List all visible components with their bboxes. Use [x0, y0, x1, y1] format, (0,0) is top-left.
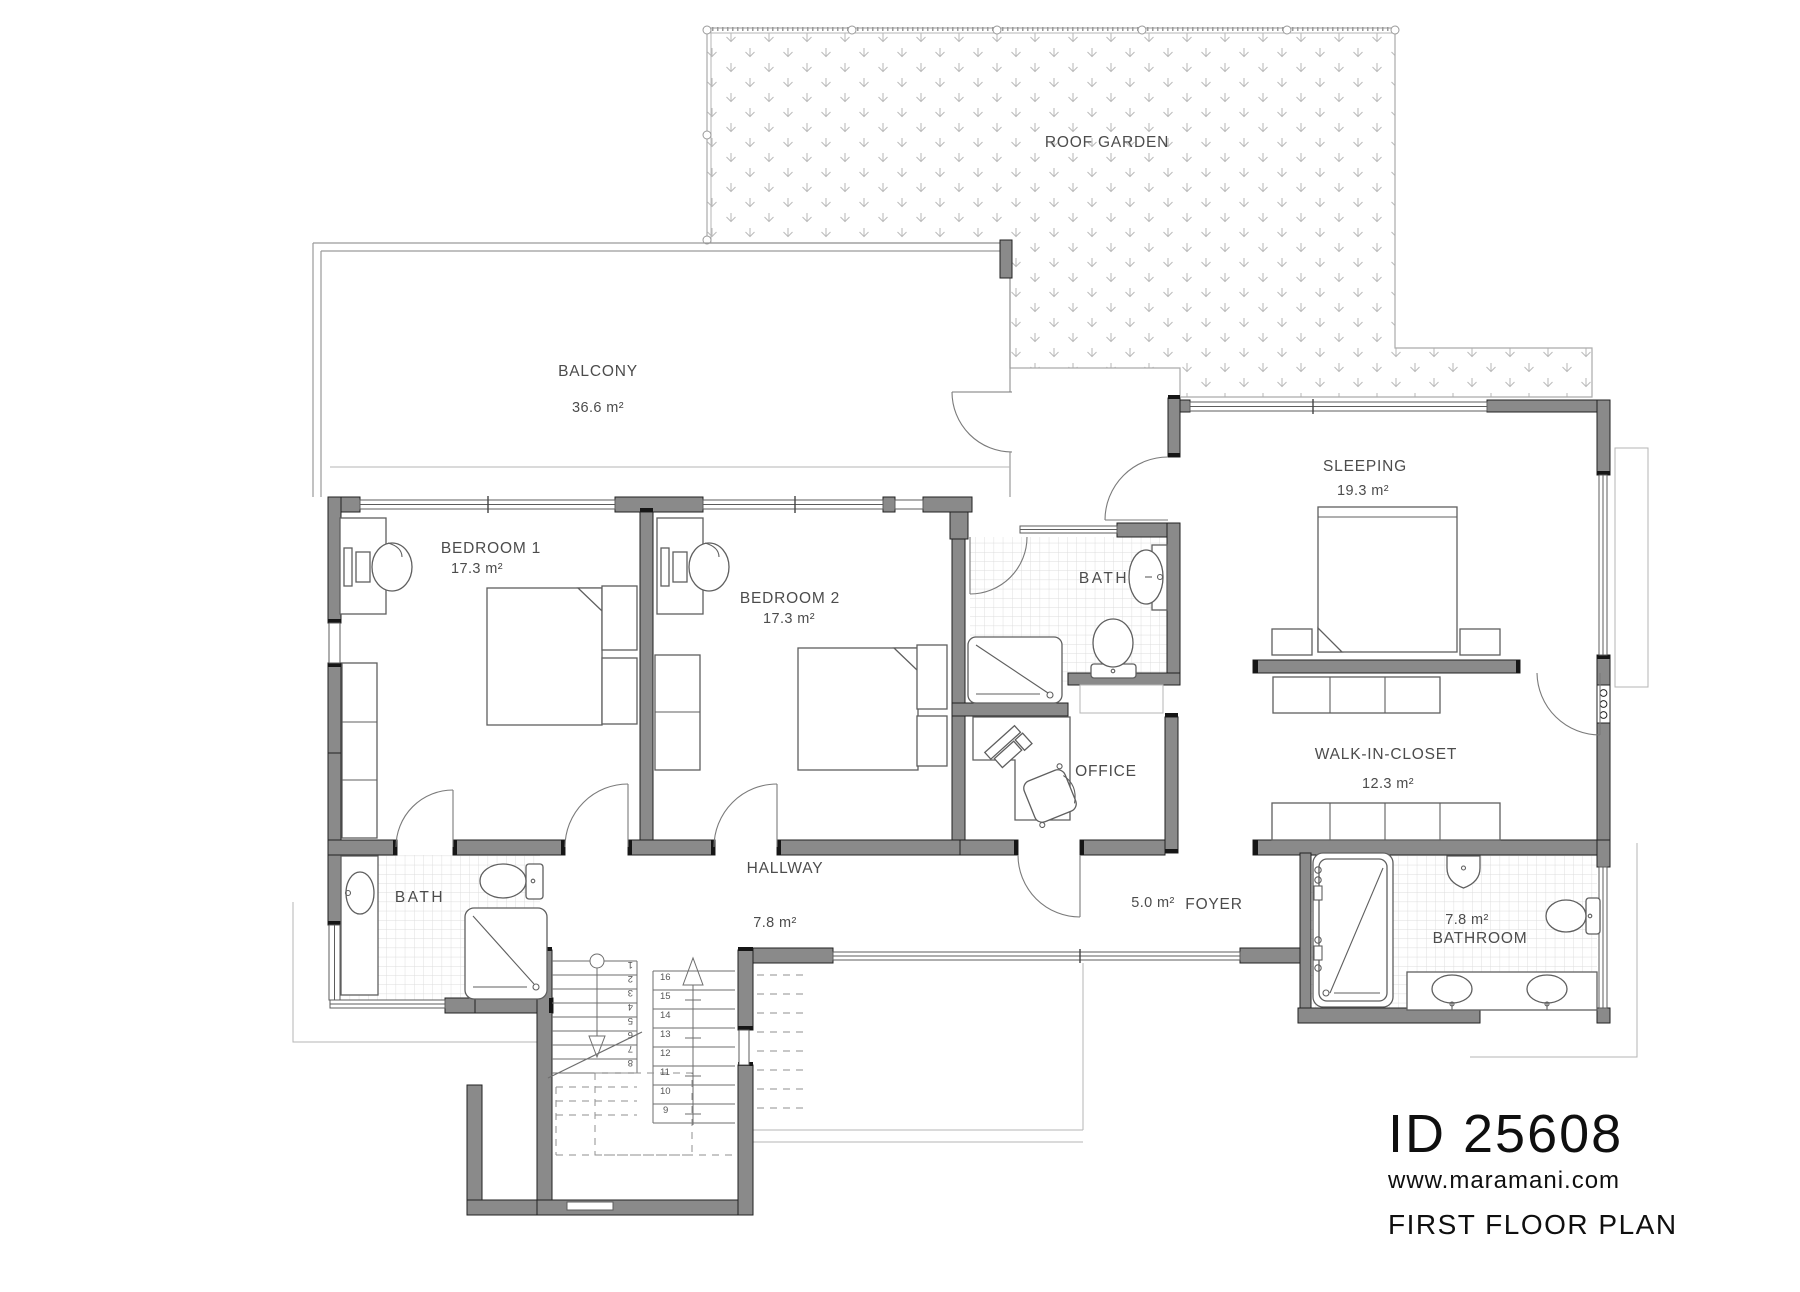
stair-numbers-down: 1 2 3 4 5 6 7 8 [628, 959, 633, 1068]
toilet [480, 864, 543, 899]
vanity-sink [341, 856, 378, 995]
door-sleeping [1105, 457, 1168, 520]
step-number: 16 [660, 972, 671, 983]
sleeping-label: SLEEPING [1323, 458, 1407, 475]
bathroom-area: 7.8 m² [1445, 912, 1489, 928]
step-number: 3 [628, 987, 633, 998]
shower [465, 908, 547, 999]
step-number: 1 [628, 959, 633, 970]
sleeping-area: 19.3 m² [1337, 483, 1389, 499]
roof-garden: ROOF GARDEN [703, 26, 1592, 397]
step-number: 13 [660, 1029, 671, 1040]
balcony: BALCONY 36.6 m² [313, 243, 1010, 497]
bathroom-label: BATHROOM [1433, 930, 1528, 947]
step-number: 2 [628, 973, 633, 984]
door-foyer [1018, 855, 1080, 917]
closet-area: 12.3 m² [1362, 776, 1414, 792]
step-number: 8 [628, 1057, 633, 1068]
closet-label: WALK-IN-CLOSET [1315, 746, 1457, 763]
balcony-area: 36.6 m² [572, 400, 624, 416]
plan-name: FIRST FLOOR PLAN [1388, 1209, 1678, 1240]
room-walk-in-closet: WALK-IN-CLOSET 12.3 m² [1272, 677, 1500, 840]
bathtub [1313, 853, 1393, 1007]
desk-bedroom2 [657, 518, 729, 614]
step-number: 10 [660, 1086, 671, 1097]
bedroom1-area: 17.3 m² [451, 561, 503, 577]
toilet [1546, 898, 1600, 934]
shower [968, 637, 1062, 703]
roof-garden-label: ROOF GARDEN [1045, 134, 1169, 151]
step-number: 6 [628, 1029, 633, 1040]
room-bedroom1: BEDROOM 1 17.3 m² [340, 518, 637, 838]
stairs: 1 2 3 4 5 6 7 8 16 15 14 13 12 11 10 9 [548, 954, 806, 1155]
stair-numbers-up: 16 15 14 13 12 11 10 9 [660, 972, 671, 1116]
hallway-area: 7.8 m² [753, 915, 797, 931]
bedroom2-area: 17.3 m² [763, 611, 815, 627]
desk-bedroom1 [340, 518, 412, 614]
toilet [1091, 619, 1136, 678]
plan-id: ID 25608 [1388, 1104, 1623, 1164]
balcony-label: BALCONY [558, 363, 638, 380]
step-number: 7 [628, 1043, 633, 1054]
roof-garden-surface [707, 28, 1592, 397]
door-closet [1537, 673, 1600, 735]
stair-dashed [556, 975, 806, 1155]
double-vanity [1407, 972, 1597, 1010]
door-bedroom1 [565, 784, 628, 847]
step-number: 14 [660, 1010, 671, 1021]
office-label: OFFICE [1075, 763, 1137, 780]
step-number: 11 [660, 1067, 670, 1078]
door-balcony [952, 392, 1012, 452]
step-number: 15 [660, 991, 671, 1002]
title-block: ID 25608 www.maramani.com FIRST FLOOR PL… [1387, 1104, 1678, 1240]
website: www.maramani.com [1387, 1167, 1620, 1194]
bath-top-label: BATH [1079, 570, 1129, 587]
floor-plan-page: ROOF GARDEN BALCONY 36.6 m² [0, 0, 1800, 1292]
east-wall-meter [1597, 685, 1610, 723]
door-bath-left [396, 790, 453, 847]
stair-treads-down-flight [552, 961, 637, 1073]
step-number: 5 [628, 1015, 633, 1026]
hallway-label: HALLWAY [747, 860, 824, 877]
floor-plan-canvas: ROOF GARDEN BALCONY 36.6 m² [0, 0, 1800, 1292]
step-number: 12 [660, 1048, 671, 1059]
stair-start-post [590, 954, 604, 968]
room-bedroom2: BEDROOM 2 17.3 m² [655, 518, 947, 770]
bedroom1-label: BEDROOM 1 [441, 540, 541, 557]
bedroom2-label: BEDROOM 2 [740, 590, 840, 607]
door-bedroom2 [714, 784, 777, 847]
room-sleeping: SLEEPING 19.3 m² [1272, 458, 1500, 655]
step-number: 9 [663, 1105, 668, 1116]
foyer-area: 5.0 m² [1131, 895, 1175, 911]
foyer-label: FOYER [1185, 896, 1242, 913]
step-number: 4 [628, 1001, 633, 1012]
bath-left-label: BATH [395, 889, 445, 906]
